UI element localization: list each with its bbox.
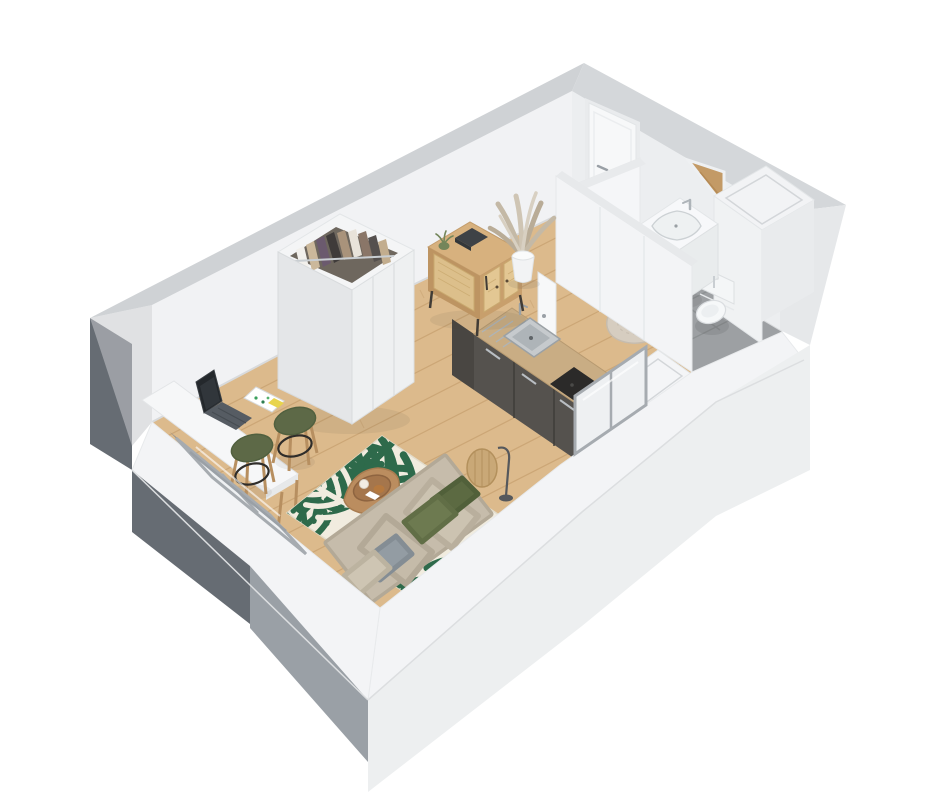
croissant	[374, 485, 385, 493]
sideboard-knob	[506, 280, 509, 283]
pampas-pot	[512, 257, 534, 283]
lamp-base	[499, 495, 513, 502]
apartment-render	[0, 0, 950, 800]
cup	[360, 480, 369, 489]
sink-drain	[529, 336, 533, 340]
floorplan-canvas	[0, 0, 950, 800]
bathroom-door-handle	[542, 314, 546, 318]
basin-drain	[674, 224, 677, 227]
sideboard-knob	[496, 286, 499, 289]
